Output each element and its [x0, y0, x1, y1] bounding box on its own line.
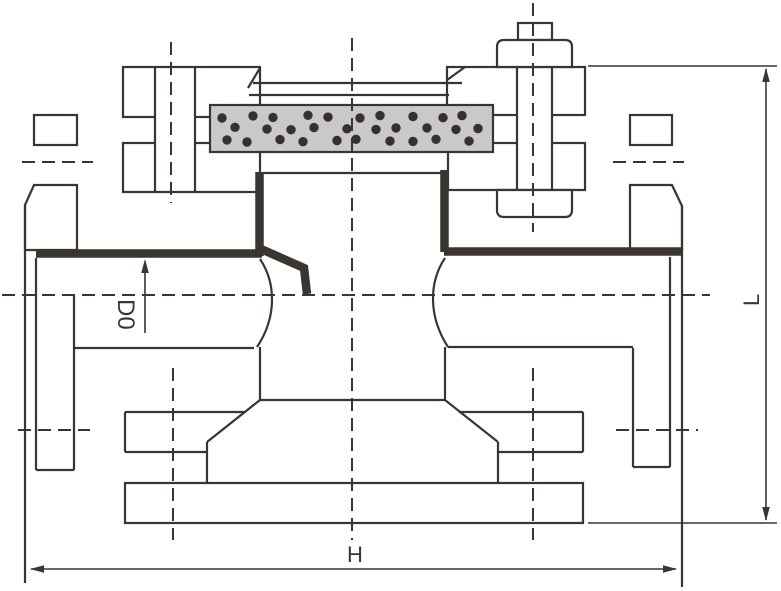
valve-section-drawing: D0 H L: [0, 0, 781, 591]
perforation-dot: [451, 125, 460, 134]
d0-label: D0: [112, 299, 139, 330]
perforation-dot: [422, 123, 431, 132]
perforation-dot: [385, 136, 394, 145]
perforation-dot: [242, 137, 251, 146]
perforation-dot: [371, 125, 380, 134]
perforation-dot: [262, 124, 271, 133]
right-flange-mid-block: [630, 185, 682, 250]
perforation-dot: [408, 137, 417, 146]
perforation-dot: [391, 123, 400, 132]
perforation-dot: [217, 113, 226, 122]
bottom-nut: [497, 190, 572, 217]
throat-arc-left: [257, 259, 272, 347]
bonnet-right-bolt-hole: [518, 69, 551, 188]
perforation-dot: [268, 113, 277, 122]
perforation-dot: [309, 123, 318, 132]
right-flange-plate: [633, 257, 670, 467]
h-arrow-left: [30, 565, 44, 573]
top-nut: [497, 40, 572, 67]
left-pipe-flange: [25, 115, 77, 583]
perforation-dot: [438, 113, 447, 122]
diaphragm-flap: [261, 249, 307, 294]
perforation-dot: [248, 111, 257, 120]
left-flange-top-block: [34, 115, 77, 145]
l-label: L: [739, 294, 764, 306]
perforation-dot: [457, 111, 466, 120]
left-flange-mid-block: [25, 185, 77, 250]
perforation-dot: [230, 123, 239, 132]
perforation-dot: [275, 135, 284, 144]
bolt-stub: [518, 23, 552, 40]
perforation-dot: [375, 111, 384, 120]
perforation-dot: [355, 113, 364, 122]
bottom-cover-slab: [125, 483, 583, 523]
drawing-canvas: D0 H L: [0, 0, 781, 591]
throat-arc-right: [433, 258, 448, 347]
bonnet-chamfer-left: [248, 68, 260, 88]
perforation-dot: [473, 124, 482, 133]
right-flange-top-block: [630, 115, 672, 145]
dimension-h: H: [30, 542, 677, 573]
perforation-dot: [408, 112, 417, 121]
perforation-dot: [222, 135, 231, 144]
perforation-dot: [342, 124, 351, 133]
h-label: H: [347, 542, 363, 567]
h-arrow-right: [663, 565, 677, 573]
perforation-dot: [323, 112, 332, 121]
perforation-dot: [332, 136, 341, 145]
perforation-dot: [298, 137, 307, 146]
d0-arrowhead: [141, 259, 149, 273]
left-flange-plate: [36, 258, 74, 470]
perforation-dot: [464, 136, 473, 145]
clamp-plate-edges: [249, 83, 462, 95]
l-arrow-top: [762, 68, 770, 82]
perforation-dot: [303, 111, 312, 120]
bonnet-chamfer-right: [447, 67, 465, 80]
bonnet-left-bolt-hole: [156, 69, 194, 190]
right-pipe-flange: [630, 115, 682, 587]
valve-body: [74, 258, 633, 523]
perforation-dot: [431, 135, 440, 144]
bottom-flange-slab: [125, 412, 583, 452]
perforation-dot: [286, 125, 295, 134]
l-arrow-bottom: [762, 507, 770, 521]
